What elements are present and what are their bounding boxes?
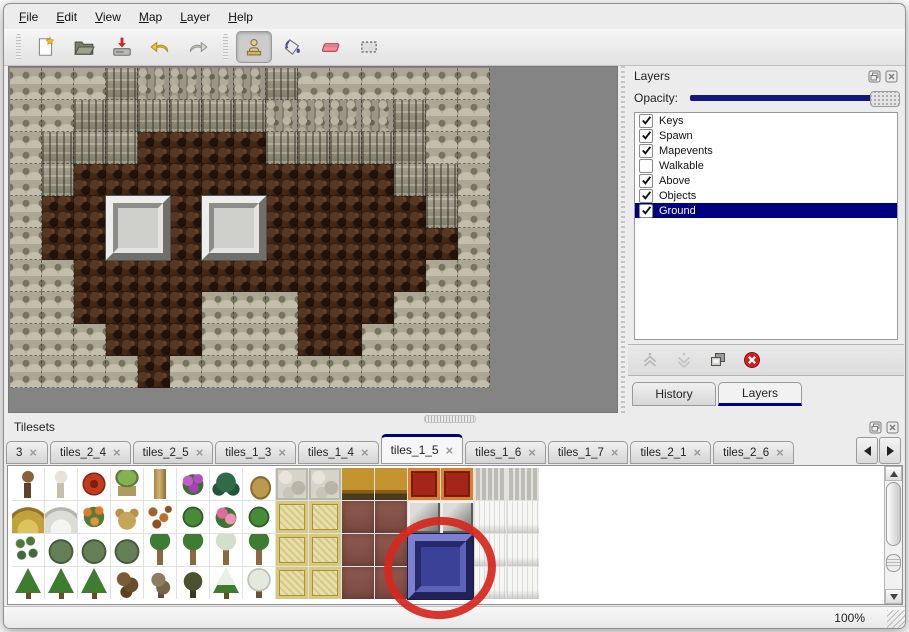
tileset-tile-deadtree[interactable] (144, 567, 176, 599)
tab-scroll-left-button[interactable] (856, 437, 878, 464)
tileset-tile-hay[interactable] (12, 501, 44, 533)
map-tile (10, 228, 42, 260)
scrollbar-grip[interactable] (886, 554, 901, 572)
layer-label: Above (659, 175, 690, 187)
tileset-tab-bar: 3×tiles_2_4×tiles_2_5×tiles_1_3×tiles_1_… (4, 437, 905, 464)
map-tile (138, 356, 170, 388)
map-tile (170, 100, 202, 132)
tileset-tile-pinkbloom[interactable] (210, 501, 242, 533)
map-tile (74, 260, 106, 292)
map-tile (330, 228, 362, 260)
tab-close-icon[interactable]: × (446, 444, 454, 457)
map-tile (394, 228, 426, 260)
tab-label: History (655, 387, 692, 401)
map-tile (394, 132, 426, 164)
scroll-up-button[interactable] (885, 466, 902, 481)
tileset-tile-whitecurtain[interactable] (507, 501, 539, 533)
tileset-tile-sprigs[interactable] (12, 534, 44, 566)
map-tile (10, 324, 42, 356)
map-tile (266, 228, 298, 260)
map-tile (170, 356, 202, 388)
map-tile (266, 132, 298, 164)
up-arrow-icon (890, 471, 898, 477)
map-tile (202, 164, 234, 196)
tileset-tab-tiles_1_3[interactable]: tiles_1_3× (215, 441, 296, 464)
map-tile (266, 196, 298, 228)
map-tile (106, 324, 138, 356)
tileset-tile-bush[interactable] (111, 534, 143, 566)
tileset-tab-tiles_1_6[interactable]: tiles_1_6× (465, 441, 546, 464)
tileset-tile-whitecurtain[interactable] (474, 501, 506, 533)
tileset-tile-graycloth[interactable] (507, 468, 539, 500)
layer-label: Spawn (659, 130, 693, 142)
open-button[interactable] (67, 32, 101, 62)
map-tile (202, 68, 234, 100)
map-tile (42, 132, 74, 164)
layer-row-ground[interactable]: Ground (635, 203, 897, 218)
tileset-tile-mat[interactable] (276, 567, 308, 599)
tileset-tile-lilypad[interactable] (243, 501, 275, 533)
map-tile (458, 292, 490, 324)
tileset-tile-darktree[interactable] (177, 567, 209, 599)
map-tile (234, 260, 266, 292)
map-tile (362, 196, 394, 228)
map-tile (362, 68, 394, 100)
map-tile (234, 292, 266, 324)
tileset-tile-grayblock[interactable] (408, 501, 440, 533)
layers-panel-title: Layers (628, 69, 868, 83)
tileset-tile-whitecurtain[interactable] (507, 567, 539, 599)
tab-label: tiles_1_6 (475, 447, 521, 459)
tileset-tile-whitecurtain[interactable] (474, 567, 506, 599)
tileset-tile-graycloth[interactable] (474, 468, 506, 500)
map-tile (138, 292, 170, 324)
map-tile (266, 164, 298, 196)
tileset-tile-woodtop[interactable] (375, 468, 407, 500)
map-tile (330, 68, 362, 100)
map-tile (426, 324, 458, 356)
tileset-tile-whitetree[interactable] (45, 468, 77, 500)
map-tile (10, 132, 42, 164)
map-tile (330, 292, 362, 324)
map-tile (10, 164, 42, 196)
tileset-tile-bush[interactable] (45, 534, 77, 566)
map-tile (170, 164, 202, 196)
map-tile (394, 196, 426, 228)
map-tile (74, 100, 106, 132)
map-tile (106, 132, 138, 164)
map-tile (234, 100, 266, 132)
map-tile (394, 260, 426, 292)
tab-close-icon[interactable]: × (29, 446, 37, 459)
map-tile (426, 164, 458, 196)
tab-close-icon[interactable]: × (694, 446, 702, 459)
map-tile (266, 356, 298, 388)
map-tile (42, 356, 74, 388)
tileset-tile-twisted[interactable] (111, 567, 143, 599)
map-tile (42, 228, 74, 260)
map-tile (234, 132, 266, 164)
map-tile (458, 196, 490, 228)
tileset-tile-stump[interactable] (111, 468, 143, 500)
close-panel-icon[interactable] (886, 421, 899, 434)
map-tile (362, 228, 394, 260)
tileset-tile-dryplant[interactable] (111, 501, 143, 533)
redo-button[interactable] (181, 32, 215, 62)
map-tile (74, 164, 106, 196)
map-tile (10, 100, 42, 132)
map-tile (42, 164, 74, 196)
map-tile (202, 356, 234, 388)
tileset-tile-stone[interactable] (276, 468, 308, 500)
tileset-tile-snowpalm[interactable] (210, 534, 242, 566)
move-layer-up-button[interactable] (640, 350, 660, 370)
tab-close-icon[interactable]: × (113, 446, 121, 459)
menu-item-file[interactable]: File (10, 7, 47, 27)
tileset-tile-pine[interactable] (78, 567, 110, 599)
map-tile (426, 228, 458, 260)
layer-row-above[interactable]: Above (635, 173, 897, 188)
tileset-tile-palm[interactable] (144, 534, 176, 566)
map-tile (106, 260, 138, 292)
map-tile (74, 356, 106, 388)
layers-panel: Layers Opacity: KeysSpawnMapeventsWalkab… (628, 66, 904, 414)
tab-label: tiles_2_5 (143, 447, 189, 459)
tilesets-panel-title: Tilesets (4, 420, 869, 434)
tileset-tile-mat[interactable] (309, 501, 341, 533)
map-tile (234, 164, 266, 196)
tileset-tile-grayblock[interactable] (441, 501, 473, 533)
map-tile (266, 260, 298, 292)
tileset-tab-tiles_2_5[interactable]: tiles_2_5× (133, 441, 214, 464)
map-tile (394, 292, 426, 324)
map-tile (298, 356, 330, 388)
map-tile (330, 164, 362, 196)
map-tile (298, 228, 330, 260)
tileset-tab-tiles_2_1[interactable]: tiles_2_1× (630, 441, 711, 464)
map-tile (74, 292, 106, 324)
tileset-tile-palm[interactable] (243, 534, 275, 566)
tileset-tile-mauve[interactable] (375, 567, 407, 599)
stamp-button[interactable] (236, 31, 272, 63)
map-tile (330, 132, 362, 164)
layer-row-keys[interactable]: Keys (635, 113, 897, 128)
map-tile (266, 324, 298, 356)
layer-label: Objects (659, 190, 696, 202)
map-tile (138, 68, 170, 100)
tileset-tile-mat[interactable] (309, 534, 341, 566)
tab-close-icon[interactable]: × (776, 446, 784, 459)
resize-grip[interactable] (887, 610, 905, 628)
map-tile (170, 132, 202, 164)
opacity-slider-handle[interactable] (870, 91, 900, 107)
tab-label: tiles_1_5 (391, 443, 439, 457)
map-tile (106, 164, 138, 196)
undo-icon (149, 36, 171, 58)
move-layer-down-button[interactable] (674, 350, 694, 370)
opacity-slider[interactable] (690, 91, 898, 105)
map-tile (138, 132, 170, 164)
map-tile (170, 196, 202, 228)
map-tile (458, 100, 490, 132)
layer-checkbox[interactable] (639, 114, 653, 128)
fill-tool-icon (282, 36, 304, 58)
map-tile (426, 100, 458, 132)
layer-label: Keys (659, 115, 683, 127)
stamp-tool-icon (243, 36, 265, 58)
eraser-tool-icon (320, 36, 342, 58)
map-tile (426, 68, 458, 100)
map-tile (42, 260, 74, 292)
layer-row-objects[interactable]: Objects (635, 188, 897, 203)
map-tile (458, 324, 490, 356)
menu-item-map[interactable]: Map (130, 7, 171, 27)
float-panel-icon[interactable] (869, 421, 882, 434)
map-tile (10, 68, 42, 100)
layer-row-spawn[interactable]: Spawn (635, 128, 897, 143)
map-tile (330, 260, 362, 292)
map-tile (298, 100, 330, 132)
tileset-tile-snowpine[interactable] (210, 567, 242, 599)
map-tile (458, 132, 490, 164)
map-tile (106, 292, 138, 324)
tileset-grid[interactable] (12, 468, 539, 599)
tileset-tile-redrug[interactable] (408, 468, 440, 500)
layer-checkbox[interactable] (639, 189, 653, 203)
select-button[interactable] (352, 32, 386, 62)
map-stone-block (202, 196, 266, 260)
layer-checkbox[interactable] (639, 144, 653, 158)
map-tile (74, 68, 106, 100)
fill-button[interactable] (276, 32, 310, 62)
map-tile (202, 100, 234, 132)
map-tile (202, 132, 234, 164)
layer-checkbox[interactable] (639, 174, 653, 188)
map-tile (138, 164, 170, 196)
tileset-tile-drywood[interactable] (243, 468, 275, 500)
tileset-tab-tiles_1_7[interactable]: tiles_1_7× (548, 441, 629, 464)
layer-label: Walkable (659, 160, 704, 172)
tileset-tile-purplebloom[interactable] (177, 468, 209, 500)
float-panel-icon[interactable] (868, 70, 881, 83)
tileset-tile-bush[interactable] (78, 534, 110, 566)
map-tile (458, 68, 490, 100)
tileset-tile-mauve[interactable] (375, 534, 407, 566)
menu-item-help[interactable]: Help (219, 7, 262, 27)
tileset-tile-woodtop[interactable] (342, 468, 374, 500)
tab-label: 3 (16, 447, 22, 459)
scroll-down-button[interactable] (885, 589, 902, 604)
map-tile (42, 196, 74, 228)
tileset-tile-whitecurtain[interactable] (474, 534, 506, 566)
tab-history[interactable]: History (632, 382, 716, 406)
tab-label: tiles_1_4 (308, 447, 354, 459)
layer-checkbox[interactable] (639, 204, 653, 218)
tileset-tile-mat[interactable] (309, 567, 341, 599)
tileset-tile-stone[interactable] (309, 468, 341, 500)
tileset-tile-mauve[interactable] (342, 567, 374, 599)
tileset-v-scrollbar[interactable] (884, 466, 902, 604)
close-panel-icon[interactable] (885, 70, 898, 83)
map-tile (42, 68, 74, 100)
map-tile (138, 260, 170, 292)
map-tile (298, 196, 330, 228)
app-window: FileEditViewMapLayerHelp Layers Opacity:… (3, 3, 906, 629)
tileset-tile-orangebloom[interactable] (78, 501, 110, 533)
tileset-tile-trunk[interactable] (12, 468, 44, 500)
map-tile (106, 100, 138, 132)
map-tile (74, 132, 106, 164)
menu-item-layer[interactable]: Layer (171, 7, 219, 27)
tab-label: Layers (742, 386, 778, 400)
map-tile (426, 132, 458, 164)
tileset-tile-snowpile[interactable] (45, 501, 77, 533)
tileset-tile-whitecurtain[interactable] (507, 534, 539, 566)
map-tile (330, 100, 362, 132)
tileset-tile-mat[interactable] (276, 534, 308, 566)
map-tile (298, 132, 330, 164)
layer-checkbox[interactable] (639, 159, 653, 173)
blue-block-tile[interactable] (408, 534, 473, 599)
tileset-tab-3[interactable]: 3× (6, 441, 48, 464)
dock-tab-bar: HistoryLayers (628, 382, 904, 406)
map-tile (74, 196, 106, 228)
map-tile (458, 260, 490, 292)
right-arrow-icon (887, 446, 894, 456)
map-viewport[interactable] (8, 66, 618, 413)
layers-panel-header: Layers (628, 66, 904, 86)
redo-icon (187, 36, 209, 58)
map-canvas[interactable] (10, 68, 490, 388)
down-arrow-icon (890, 594, 898, 600)
menu-item-view[interactable]: View (86, 7, 130, 27)
tileset-tab-tiles_1_5[interactable]: tiles_1_5× (381, 434, 464, 464)
tab-close-icon[interactable]: × (611, 446, 619, 459)
tileset-tile-lilypad[interactable] (177, 501, 209, 533)
tileset-tile-fern[interactable] (210, 468, 242, 500)
layers-list: KeysSpawnMapeventsWalkableAboveObjectsGr… (634, 112, 898, 340)
tileset-content (7, 465, 903, 605)
map-stone-block (106, 196, 170, 260)
map-tile (10, 260, 42, 292)
scrollbar-thumb[interactable] (886, 482, 901, 546)
tileset-tile-mauve[interactable] (375, 501, 407, 533)
map-tile (138, 100, 170, 132)
toolbar-grip[interactable] (223, 34, 228, 60)
tileset-tile-mat[interactable] (276, 501, 308, 533)
tab-close-icon[interactable]: × (528, 446, 536, 459)
map-tile (362, 292, 394, 324)
tab-scroll-right-button[interactable] (879, 437, 901, 464)
map-tile (138, 324, 170, 356)
map-tile (426, 196, 458, 228)
vertical-splitter[interactable] (621, 66, 625, 413)
tileset-tab-tiles_1_4[interactable]: tiles_1_4× (298, 441, 379, 464)
map-tile (234, 356, 266, 388)
tileset-tile-pine[interactable] (12, 567, 44, 599)
map-tile (362, 132, 394, 164)
tileset-tile-mauve[interactable] (342, 534, 374, 566)
map-tile (298, 260, 330, 292)
map-tile (298, 292, 330, 324)
map-tile (202, 324, 234, 356)
opacity-slider-track[interactable] (690, 95, 898, 101)
tab-label: tiles_2_4 (60, 447, 106, 459)
tileset-tab-tiles_2_4[interactable]: tiles_2_4× (50, 441, 131, 464)
select-tool-icon (358, 36, 380, 58)
map-tile (458, 228, 490, 260)
map-tile (10, 356, 42, 388)
status-bar: 100% (4, 606, 905, 628)
tab-close-icon[interactable]: × (361, 446, 369, 459)
map-tile (106, 68, 138, 100)
layer-row-mapevents[interactable]: Mapevents (635, 143, 897, 158)
tileset-tile-mauve[interactable] (342, 501, 374, 533)
layers-button-row (628, 344, 904, 376)
map-tile (426, 292, 458, 324)
tileset-tile-trunk2[interactable] (144, 468, 176, 500)
map-tile (362, 324, 394, 356)
tileset-tile-redbloom[interactable] (78, 468, 110, 500)
eraser-button[interactable] (314, 32, 348, 62)
map-tile (170, 324, 202, 356)
tab-label: tiles_1_7 (558, 447, 604, 459)
map-tile (362, 100, 394, 132)
map-tile (362, 164, 394, 196)
tab-layers[interactable]: Layers (718, 382, 802, 406)
map-tile (234, 324, 266, 356)
tileset-tile-leaves[interactable] (144, 501, 176, 533)
toolbar (4, 29, 905, 66)
map-tile (362, 260, 394, 292)
toolbar-grip[interactable] (16, 34, 21, 60)
menu-item-edit[interactable]: Edit (47, 7, 86, 27)
layer-checkbox[interactable] (639, 129, 653, 143)
map-tile (298, 68, 330, 100)
undo-button[interactable] (143, 32, 177, 62)
map-tile (330, 196, 362, 228)
map-tile (106, 356, 138, 388)
map-tile (170, 260, 202, 292)
layer-label: Ground (659, 205, 696, 217)
map-tile (10, 196, 42, 228)
tab-close-icon[interactable]: × (278, 446, 286, 459)
map-tile (458, 356, 490, 388)
new-button[interactable] (29, 32, 63, 62)
map-tile (394, 164, 426, 196)
save-button[interactable] (105, 32, 139, 62)
tileset-tab-tiles_2_6[interactable]: tiles_2_6× (713, 441, 794, 464)
tileset-tile-pine[interactable] (45, 567, 77, 599)
map-tile (202, 260, 234, 292)
tileset-tile-snowtree[interactable] (243, 567, 275, 599)
tileset-tile-palm[interactable] (177, 534, 209, 566)
tab-close-icon[interactable]: × (196, 446, 204, 459)
map-tile (394, 68, 426, 100)
map-tile (234, 68, 266, 100)
tileset-tile-redrug[interactable] (441, 468, 473, 500)
layer-row-walkable[interactable]: Walkable (635, 158, 897, 173)
map-tile (394, 356, 426, 388)
layer-label: Mapevents (659, 145, 713, 157)
new-file-icon (35, 36, 57, 58)
duplicate-layer-button[interactable] (708, 350, 728, 370)
map-tile (170, 68, 202, 100)
delete-layer-button[interactable] (742, 350, 762, 370)
map-tile (426, 260, 458, 292)
tilesets-panel: Tilesets 3×tiles_2_4×tiles_2_5×tiles_1_3… (4, 417, 905, 609)
map-tile (298, 324, 330, 356)
